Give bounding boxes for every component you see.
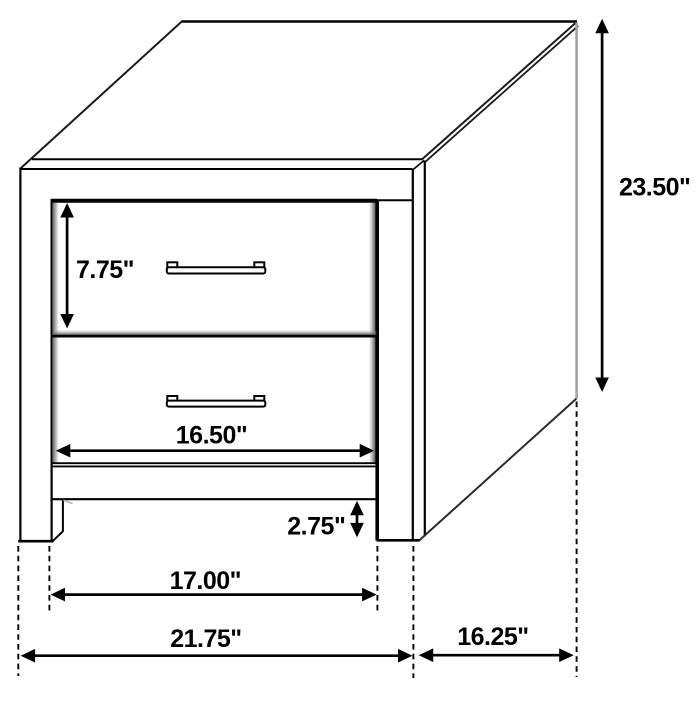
svg-text:2.75": 2.75"	[287, 513, 345, 541]
svg-text:16.25": 16.25"	[457, 623, 528, 651]
svg-text:16.50": 16.50"	[176, 422, 247, 450]
svg-text:21.75": 21.75"	[170, 625, 241, 653]
svg-text:23.50": 23.50"	[619, 174, 690, 202]
svg-text:7.75": 7.75"	[76, 256, 134, 284]
svg-text:17.00": 17.00"	[170, 567, 241, 595]
